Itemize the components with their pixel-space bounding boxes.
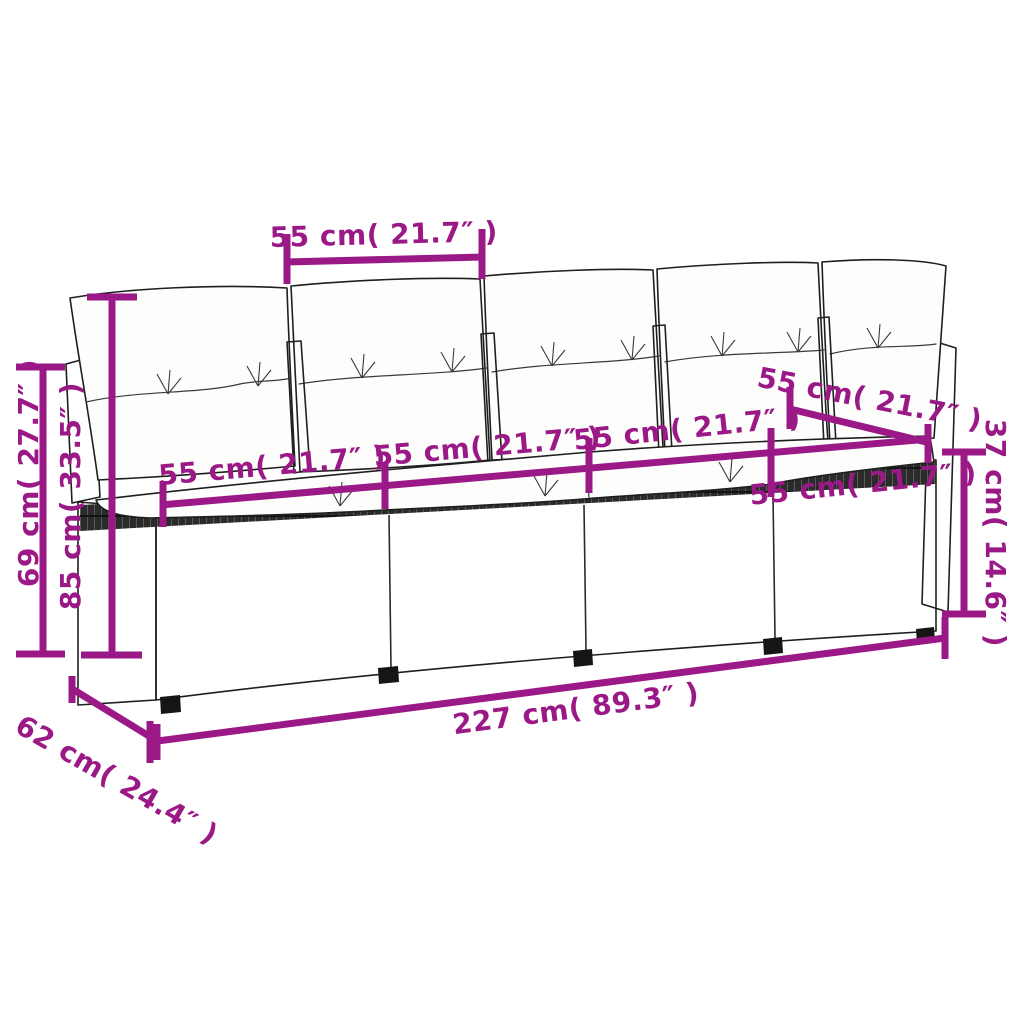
dim-cushion-width-top-label: 55 cm( 21.7″ ) bbox=[269, 215, 498, 254]
base-left-face bbox=[78, 502, 156, 705]
dim-seat-height: 37 cm( 14.6″ ) bbox=[942, 419, 1012, 647]
dim-base-depth-label: 62 cm( 24.4″ ) bbox=[10, 708, 224, 851]
dim-seat-height-label: 37 cm( 14.6″ ) bbox=[979, 419, 1012, 647]
sofa-dimension-diagram: 55 cm( 21.7″ ) 69 cm( 27.7″ ) 85 cm( 33.… bbox=[0, 0, 1024, 1024]
dim-total-length: 227 cm( 89.3″ ) bbox=[150, 617, 945, 763]
foot bbox=[573, 649, 593, 667]
dimension-line bbox=[74, 690, 157, 741]
dim-cushion-width-top: 55 cm( 21.7″ ) bbox=[269, 215, 498, 284]
dim-backrest-height-label: 69 cm( 27.7″ ) bbox=[12, 359, 45, 587]
base-seam bbox=[773, 495, 775, 638]
dim-total-height-label: 85 cm( 33.5″ ) bbox=[54, 382, 87, 610]
base-seam bbox=[584, 505, 586, 650]
product-diagram-canvas: 55 cm( 21.7″ ) 69 cm( 27.7″ ) 85 cm( 33.… bbox=[0, 0, 1024, 1024]
base-seam bbox=[389, 515, 391, 668]
foot bbox=[763, 637, 783, 655]
foot bbox=[160, 695, 181, 714]
dimension-line bbox=[286, 257, 483, 262]
foot bbox=[378, 666, 399, 684]
